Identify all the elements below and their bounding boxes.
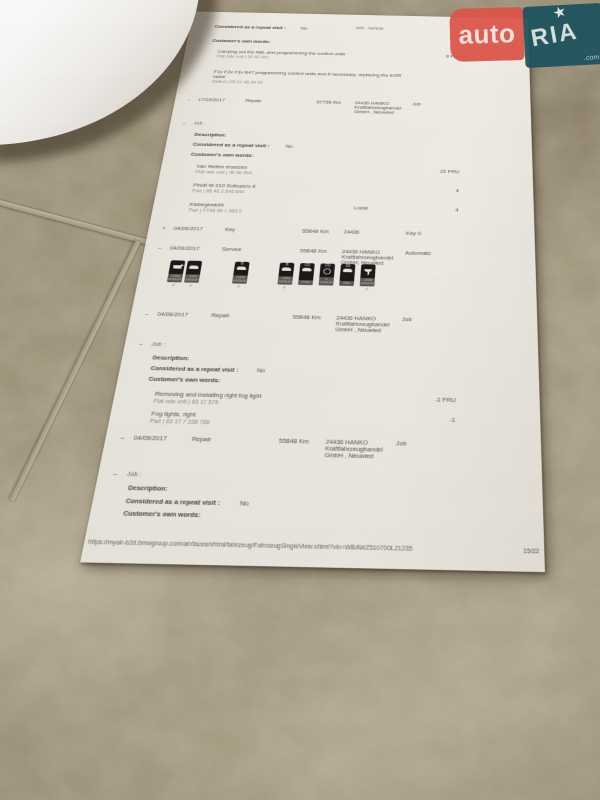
check-icon: ✓: [166, 283, 181, 288]
work-item-code: Part | FT93 99 1 983 0: [188, 208, 242, 215]
description-label: Description:: [194, 133, 227, 139]
repeat-visit-value: No: [285, 145, 293, 150]
collapse-icon: –: [144, 312, 149, 318]
oilcan-icon: [172, 265, 181, 269]
work-item-code: Flat rate unit | 63 17 575: [153, 399, 219, 407]
history-entry-row: + 04/09/2017 Key 55848 Km 24436 Key 0: [149, 226, 534, 234]
entry-tag: Job: [412, 103, 421, 108]
entry-dealer: 24436: [343, 230, 414, 237]
entry-kind: Repair: [211, 313, 230, 319]
collapse-icon: –: [113, 471, 118, 478]
history-entry-row: – 04/09/2017 Repair 55848 Km 24436 HANKO…: [106, 435, 541, 444]
repeat-visit-value: No: [239, 501, 249, 509]
front-brake-mark: B: [241, 262, 244, 266]
work-item: Fog lights, right Part | 63 17 7 238 788…: [111, 411, 540, 420]
check-icon: ✓: [359, 288, 374, 293]
photo-of-service-document: AIR - Vehicle Considered as a repeat vis…: [0, 0, 600, 800]
customer-words-label: Customer's own words:: [122, 511, 200, 520]
engine-oil-mark: [177, 260, 178, 264]
ria-logo-badge: ★ RIA .com: [522, 3, 600, 68]
expand-icon: +: [161, 226, 165, 232]
entry-kind: Repair: [191, 437, 211, 444]
entry-mileage: 55848 Km: [292, 315, 321, 322]
work-item: Pirelli W 210 Sottozero II Part | 85 45 …: [158, 183, 533, 191]
collapse-icon: –: [138, 342, 143, 348]
rear-brake-stamp: B+140009/2018✓: [277, 263, 295, 291]
description-label: Description:: [152, 356, 190, 363]
collapse-icon: –: [182, 121, 186, 126]
page-title: AIR - Vehicle: [356, 27, 384, 32]
work-item-code: Defect | 00 11 45 04 00: [212, 80, 263, 86]
work-item-code: Flat rate unit | 00 63 941: [216, 55, 269, 61]
entry-date: 17/10/2017: [197, 98, 225, 103]
work-item-value: -1: [411, 417, 456, 425]
work-item: Vier Reifen ersetzen Flat rate unit | 36…: [162, 164, 533, 172]
entry-dealer: 24436 HANKO Kraftfahrzeughandel GmbH , N…: [324, 440, 405, 462]
entry-date: 04/09/2017: [169, 246, 199, 252]
collapse-icon: –: [187, 98, 191, 103]
wheel-service-mark: (O): [304, 263, 310, 267]
work-item: Klebegewicht Part | FT93 99 1 983 0 Loca…: [154, 202, 534, 210]
customer-words-label: Customer's own words:: [190, 153, 254, 159]
repeat-visit-label: Considered as a repeat visit :: [192, 143, 269, 150]
job-row: – Job :: [125, 342, 538, 351]
ria-logo-text: RIA: [529, 18, 580, 54]
collapse-icon: –: [120, 435, 125, 442]
auto-logo-badge: auto: [449, 7, 524, 62]
repeat-visit-label: Considered as a repeat visit :: [214, 25, 285, 31]
car-icon: [237, 266, 247, 270]
page-footer: https://myair-b2d.bmwgroup.com/air/faces…: [85, 539, 544, 549]
rear-brake-values: +140009/2018: [277, 276, 292, 284]
job-row: – Job :: [99, 471, 542, 480]
entry-tag: Job: [396, 441, 407, 448]
wheel-service-stamp: (O)21920: [298, 263, 315, 287]
entry-mileage: 55848 Km: [300, 249, 327, 255]
car-icon: [282, 267, 292, 271]
front-brake-values: +140009/2018: [232, 275, 248, 283]
customer-words-label: Customer's own words:: [148, 377, 221, 385]
repeat-visit-value: No: [300, 27, 307, 31]
work-item-value: 4: [420, 188, 459, 194]
entry-dealer: 24436 HANKO Kraftfahrzeughandel GmbH , N…: [335, 316, 411, 335]
customer-words-label: Customer's own words:: [212, 39, 271, 45]
brake-fluid-mark: |O|: [345, 264, 350, 268]
vehicle-check-values: +140004/2018: [184, 274, 200, 282]
check-icon: ✓: [231, 285, 246, 290]
repeat-visit-line: Considered as a repeat visit : No: [120, 366, 538, 375]
repeat-visit-label: Considered as a repeat visit :: [150, 366, 239, 374]
entry-tag: Job: [402, 317, 412, 323]
brake-fluid-stamp: |O|8/00: [339, 264, 355, 288]
steering-check-mark: (O): [325, 264, 331, 268]
entry-tag: Automatic: [405, 251, 431, 257]
entry-date: 04/09/2017: [173, 227, 203, 233]
steering-check-stamp: (O)009/2018: [318, 263, 335, 287]
job-label: Job :: [151, 342, 166, 349]
work-item: Removing and installing right fog light …: [115, 391, 539, 400]
work-item-source: Local: [354, 206, 368, 212]
entry-tag: Key 0: [406, 231, 421, 237]
repeat-visit-label: Considered as a repeat visit :: [125, 499, 220, 508]
entry-mileage: 57755 Km: [316, 101, 341, 106]
car-icon: [302, 268, 312, 272]
engine-oil-stamp: +140009/2018✓: [166, 260, 186, 288]
steering-check-values: 009/2018: [319, 277, 334, 285]
steer-icon: [323, 268, 331, 274]
entry-date: 04/09/2017: [157, 312, 189, 319]
collapse-icon: –: [157, 246, 161, 252]
check-icon: ✓: [183, 284, 198, 289]
wheel-service-values: 21920: [298, 280, 313, 285]
statutory-inspection-stamp: +140009/2018✓: [359, 264, 375, 292]
entry-kind: Service: [221, 247, 241, 253]
history-entry-row: – 04/09/2017 Repair 55848 Km 24436 HANKO…: [132, 312, 538, 320]
service-stamps-row: +140009/2018✓+140004/2018✓B+140009/2018✓…: [136, 260, 537, 300]
page-number: 15/22: [492, 548, 540, 557]
work-item-value: 4: [419, 208, 458, 214]
job-label: Job :: [193, 122, 206, 127]
rear-brake-mark: B: [286, 263, 289, 267]
work-item-code: Part | 85 45 2 546 694: [192, 189, 245, 195]
work-item-value: 22 FRU: [421, 169, 459, 175]
front-brake-stamp: B+140009/2018✓: [231, 262, 250, 290]
check-icon: ✓: [277, 286, 292, 291]
repeat-visit-line: Considered as a repeat visit : No: [93, 498, 543, 507]
vehicle-check-stamp: +140004/2018✓: [183, 261, 202, 289]
work-item: F1x F2x F3x B47 programming control unit…: [181, 70, 530, 77]
brake-fluid-values: 8/00: [339, 281, 354, 286]
statutory-inspection-values: +140009/2018: [360, 278, 375, 286]
entry-kind: Repair: [245, 99, 261, 104]
work-item-code: Part | 63 17 7 238 788: [149, 419, 210, 427]
auto-logo-text: auto: [458, 18, 516, 50]
history-entry-row: – 17/10/2017 Repair 57755 Km 24436 HANKO…: [175, 98, 530, 105]
entry-mileage: 55848 Km: [278, 439, 309, 447]
vehicle-check-mark: [194, 261, 195, 265]
description-label: Description:: [127, 486, 168, 494]
job-label: Job :: [126, 472, 142, 480]
job-row: – Job :: [171, 121, 532, 129]
autoria-watermark: auto ★ RIA .com: [450, 5, 600, 69]
goblet-icon: [364, 269, 372, 272]
repeat-visit-value: No: [256, 368, 265, 375]
repeat-visit-line: Considered as a repeat visit : No: [166, 142, 532, 150]
history-entry-row: – 04/09/2017 Service 55848 Km 24436 HANK…: [145, 246, 535, 254]
footer-url: https://myair-b2d.bmwgroup.com/air/faces…: [87, 539, 412, 554]
ria-tld-text: .com: [584, 54, 600, 62]
entry-kind: Key: [224, 228, 235, 234]
entry-date: 04/09/2017: [133, 436, 167, 444]
work-item-value: -1 FRU: [412, 397, 456, 405]
car-icon: [189, 265, 199, 269]
engine-oil-values: +140009/2018: [167, 274, 183, 282]
entry-mileage: 55848 Km: [302, 229, 329, 235]
car-icon: [343, 269, 353, 273]
entry-dealer: 24436 HANKO Kraftfahrzeughandel GmbH , N…: [354, 101, 420, 116]
work-item-code: Flat rate unit | 36 00 004: [195, 170, 252, 176]
